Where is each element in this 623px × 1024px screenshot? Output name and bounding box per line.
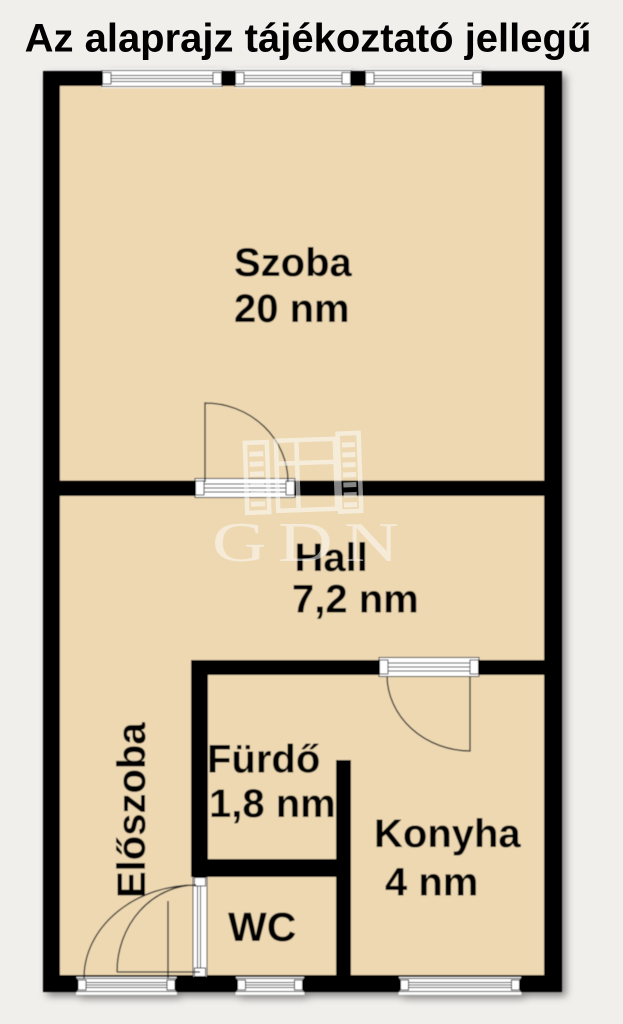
svg-text:7,2 nm: 7,2 nm [292, 578, 419, 622]
svg-text:WC: WC [228, 904, 296, 950]
svg-text:20 nm: 20 nm [234, 287, 350, 331]
svg-text:Az alaprajz tájékoztató jelleg: Az alaprajz tájékoztató jellegű [25, 17, 592, 61]
svg-text:Szoba: Szoba [234, 241, 353, 285]
svg-text:1,8 nm: 1,8 nm [209, 782, 336, 826]
svg-text:Konyha: Konyha [374, 812, 521, 856]
svg-text:4 nm: 4 nm [385, 861, 478, 905]
svg-text:GDN: GDN [212, 512, 410, 573]
svg-text:Fürdő: Fürdő [207, 738, 320, 782]
svg-text:Előszoba: Előszoba [110, 722, 154, 898]
